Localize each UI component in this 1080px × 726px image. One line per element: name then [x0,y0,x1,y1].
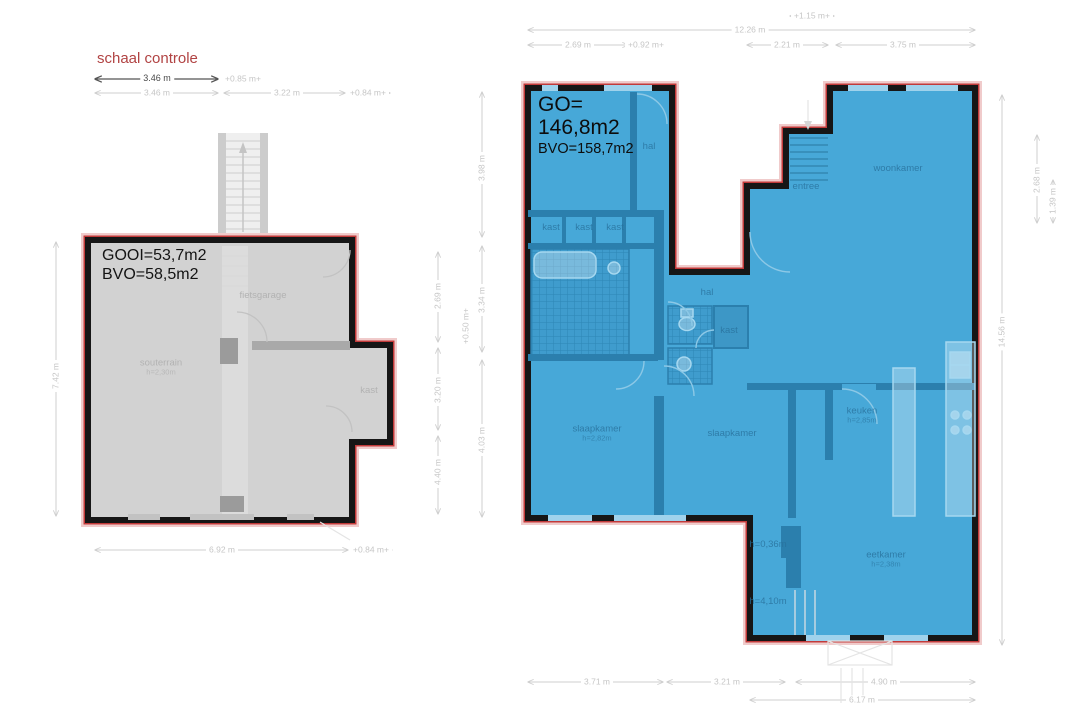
scale-control-title: schaal controle [97,50,198,67]
left-plan-gross-area: BVO=58,5m2 [102,265,207,284]
right-plan-usable-area-label: GO= [538,94,634,117]
right-plan-area-label: GO= 146,8m2 BVO=158,7m2 [538,94,634,158]
right-plan-outline [528,88,975,638]
right-plan-gross-area: BVO=158,7m2 [538,142,634,158]
left-plan [88,133,390,540]
bathtub-icon [534,252,596,278]
entree-stairs [790,138,828,180]
left-plan-area-label: GOOI=53,7m2 BVO=58,5m2 [102,246,207,284]
staircase [218,133,268,243]
washbasin-icon [608,262,620,274]
right-plan [528,85,975,703]
left-plan-usable-area: GOOI=53,7m2 [102,246,207,265]
right-plan-usable-area-value: 146,8m2 [538,117,634,140]
stove-icon [951,411,959,419]
shower-drain-icon [677,357,691,371]
floorplan-page: schaal controle GOOI=53,7m2 BVO=58,5m2 G… [0,0,1080,726]
